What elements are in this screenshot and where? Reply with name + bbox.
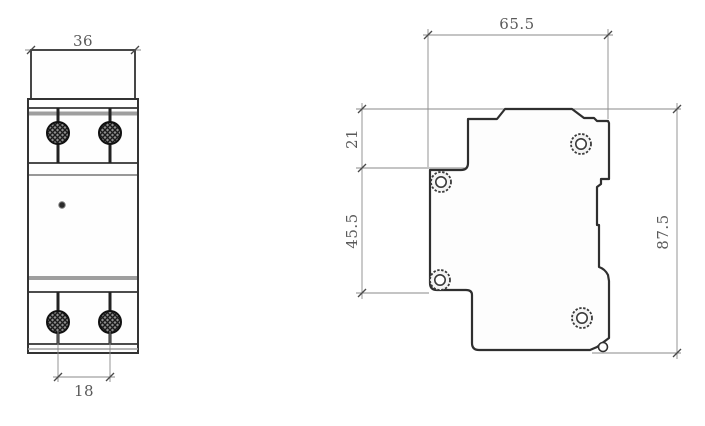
front-lower-screw-left	[47, 311, 69, 333]
dim-terminal-pitch-label: 18	[74, 382, 94, 400]
front-body	[28, 99, 138, 353]
front-upper-screw-right	[99, 122, 121, 144]
front-indicator-dot	[59, 202, 65, 208]
side-view	[430, 109, 609, 352]
side-screw-core	[576, 139, 586, 149]
side-screw-core	[577, 313, 587, 323]
front-lower-screw-right	[99, 311, 121, 333]
side-screw-core	[436, 177, 446, 187]
dim-overall-height-label: 87.5	[654, 214, 672, 249]
dim-depth-label: 65.5	[499, 15, 534, 33]
engineering-drawing: 36 18	[0, 0, 705, 426]
dim-mid-height-label: 45.5	[343, 213, 361, 248]
front-gray-band-upper	[29, 112, 137, 116]
front-gray-band-lower	[29, 276, 137, 280]
dim-top-offset-label: 21	[343, 129, 361, 149]
front-upper-screw-left	[47, 122, 69, 144]
dim-overall-width-label: 36	[73, 32, 93, 50]
side-clip-tab	[599, 343, 608, 352]
front-view	[25, 50, 141, 353]
side-screw-core	[435, 275, 445, 285]
front-top-cap	[31, 50, 135, 99]
dimension-mid-height: 45.5	[343, 213, 366, 297]
drawing-canvas: 36 18	[0, 0, 705, 426]
dimension-top-offset: 21	[343, 105, 366, 172]
